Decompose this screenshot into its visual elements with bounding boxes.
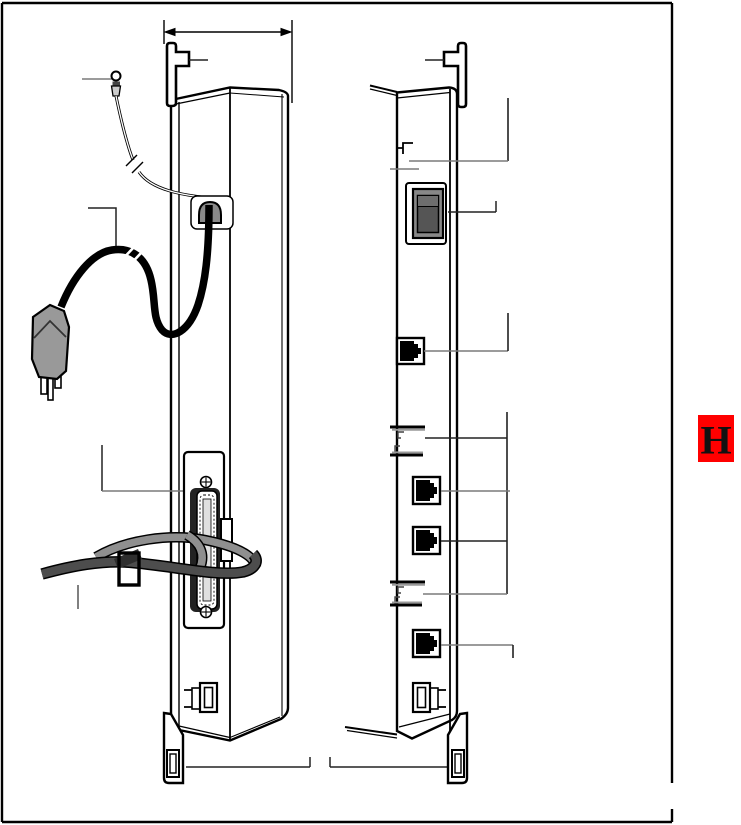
jack-opening-icon	[416, 480, 437, 501]
arrowhead-right-icon	[281, 29, 291, 36]
callout-power-cord	[88, 208, 116, 249]
power-plug	[32, 305, 69, 400]
connector-screw-bottom	[201, 607, 212, 618]
jack-opening-icon	[400, 341, 421, 361]
left-side-view	[171, 88, 288, 741]
jack-opening-icon	[416, 530, 437, 551]
manual-page: H	[0, 0, 741, 825]
section-tab-label[interactable]: H	[700, 418, 731, 463]
ring-terminal-icon	[112, 72, 121, 81]
callout-feet	[186, 757, 448, 767]
page-border	[2, 3, 672, 822]
plug-body	[32, 305, 69, 379]
line-jack-3	[413, 527, 507, 554]
line-jack-2	[413, 477, 510, 504]
line-jack-4	[413, 630, 513, 658]
wire-ferrule	[112, 86, 121, 96]
jack-opening-icon	[416, 633, 437, 654]
arrowhead-left-icon	[165, 29, 175, 36]
connector-screw-top	[201, 477, 212, 488]
section-tab[interactable]: H	[698, 415, 734, 463]
